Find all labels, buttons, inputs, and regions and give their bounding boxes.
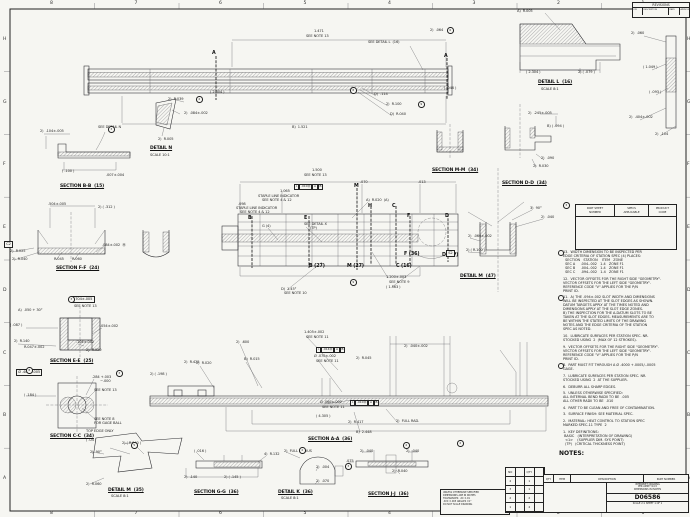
dimension-label: 2) .040	[541, 216, 554, 220]
zone-number-top: 7	[135, 1, 138, 6]
title-block-right: INTERPRET DRAWING PER ASME Y14.5 DIMENSI…	[607, 483, 688, 512]
zone-letter-right: F	[687, 162, 690, 167]
title-block-signature-area	[544, 483, 607, 512]
dimension-label: ( .046 )	[444, 87, 456, 91]
dimension-label: SEE NOTE 4 & 12	[262, 199, 292, 203]
dimension-label: SCALE 10:1	[150, 154, 170, 158]
note-flag-balloon: 2	[196, 96, 203, 103]
note-item: 7. LUBRICATE SURFACES PER STATION SPEC. …	[559, 374, 687, 382]
title-block: INTERPRET DRAWING PER ASME Y14.5 DIMENSI…	[543, 482, 689, 513]
view-section-g-g	[186, 452, 266, 477]
tolerance-block: UNLESS OTHERWISE SPECIFIED DIMENSIONS AR…	[440, 489, 510, 515]
zone-number-top: 4	[388, 1, 391, 6]
drawing-number: D06586	[607, 494, 688, 501]
dimension-label: 2) R.100	[386, 103, 401, 107]
note-flag-balloon: 3	[116, 370, 123, 377]
qty-cell	[516, 468, 526, 477]
view-detail-l	[520, 13, 620, 73]
dimension-label: ( 1.563 )	[386, 286, 400, 290]
qty-cell	[516, 494, 526, 503]
note-item: 8. PART MUST FIT THROUGH A Ø .4000 +.000…	[559, 363, 687, 371]
boxed-dimension: S2	[446, 250, 455, 257]
qty-cell	[516, 503, 526, 512]
dimension-label: ( 2.304 )	[210, 91, 224, 95]
dimension-label: 2) .004	[316, 466, 329, 470]
revisions-col-date: DATE	[669, 8, 680, 15]
dimension-label: ( 1.049 )	[643, 66, 657, 70]
zone-letter-left: G	[3, 100, 7, 105]
note-item: 13. WIDTH DIMENSION TO BE INSPECTED PER …	[559, 250, 687, 274]
dimension-label: SEE NOTE 4 & 12	[240, 211, 270, 215]
dimension-label: D) R.040	[390, 113, 406, 117]
cut-plane-letter: H	[368, 205, 372, 210]
dimension-label: 2) 90°	[90, 451, 102, 455]
dimension-label: .070	[360, 181, 368, 185]
note-item: 5. UNLESS OTHERWISE SPECIFIED: ALL INTER…	[559, 391, 687, 403]
dimension-label: 2) FULL RADIUS	[284, 450, 312, 454]
dimension-label: A) R.005	[517, 10, 533, 14]
note-flag-balloon: 3	[108, 126, 115, 133]
gdt-frame: ⌖.010ⓂAB	[294, 184, 323, 190]
dimension-label: .104±.002	[76, 341, 94, 345]
gdt-cell: .010Ⓜ	[355, 400, 368, 406]
dimension-label: SEE NOTE 10	[284, 292, 307, 296]
view-label: DETAIL M (35)	[108, 489, 144, 494]
note-flag-balloon: 6	[447, 27, 454, 34]
dimension-label: SEE NOTE 13	[304, 174, 327, 178]
dimension-label: D) .114	[374, 93, 388, 97]
cut-plane-letter: A	[444, 55, 448, 60]
dimension-label: TOP EDGE ONLY	[86, 430, 114, 434]
dimension-label: 2) .104±.005	[40, 130, 64, 134]
zone-letter-left: A	[3, 476, 6, 481]
view-label: DETAIL N	[150, 147, 172, 152]
qty-header: NO	[506, 468, 516, 477]
zone-number-top: 3	[473, 1, 476, 6]
note-item: 12. VECTOR OFFSETS FOR THE RIGHT SIDE "G…	[559, 277, 687, 293]
dimension-label: SCALE 8:1	[111, 495, 129, 499]
note-flag-balloon: 3	[563, 202, 570, 209]
note-flag-balloon: 9	[350, 279, 357, 286]
revisions-col-approved: APPROVED	[680, 8, 689, 15]
qty-cell: 1	[506, 503, 516, 512]
dimension-label: .054±.002	[100, 325, 118, 329]
note-flag-balloon: 2	[403, 442, 410, 449]
view-right-edge-bar	[640, 36, 676, 136]
revisions-columns: LTR DESCRIPTION DATE APPROVED	[633, 8, 689, 15]
dimension-label: 2) .040	[360, 450, 373, 454]
dimension-label: ( .016 )	[194, 450, 206, 454]
cut-plane-letter: D	[445, 215, 449, 220]
note-flag-balloon: 3	[345, 463, 352, 470]
view-label: SECTION M-M (34)	[432, 169, 478, 174]
dimension-label: 2) .140	[184, 476, 197, 480]
dimension-label: ( .184 )	[24, 394, 36, 398]
dimension-label: ( .087 )	[10, 324, 22, 328]
note-flag-balloon: 5	[131, 442, 138, 449]
qty-cell: 2	[525, 494, 535, 503]
scale-and-sheet: SCALE 2:1 SHEET 1 OF 1	[607, 501, 688, 506]
view-label: SECTION D-D (34)	[502, 182, 547, 187]
qty-cell: 1	[525, 486, 535, 495]
gdt-cell: B	[374, 400, 380, 406]
dimension-label: B) R.015	[244, 358, 260, 362]
cut-plane-letter: B (27)	[309, 265, 325, 270]
spec-col-specs: SPECS APPLICABLE	[615, 205, 649, 216]
spec-col-product: PRODUCT CODE	[649, 205, 676, 216]
dimension-label: 2) R.040	[12, 258, 27, 262]
qty-cell: 2	[506, 494, 516, 503]
dimension-label: 2) ( .312 )	[98, 206, 115, 210]
zone-letter-left: E	[3, 225, 6, 230]
note-flag-marker	[558, 295, 564, 301]
note-flag-balloon: 3	[68, 296, 75, 303]
note-flag-balloon: 8	[350, 87, 357, 94]
dimension-label: 4) R.132	[264, 453, 279, 457]
cut-plane-letter: B	[248, 217, 252, 222]
dimension-label: SCALE 8:1	[281, 497, 299, 501]
note-flag-balloon: 9	[418, 101, 425, 108]
gdt-cell: .014Ⓜ	[321, 347, 334, 353]
zone-letter-left: H	[3, 37, 6, 42]
view-label: DETAIL K (36)	[278, 491, 313, 496]
dimension-label: A) R.020 (A)	[366, 199, 389, 203]
dimension-label: 2) .064	[430, 29, 443, 33]
view-label: DETAIL L (16)	[538, 81, 572, 86]
view-section-b-b	[44, 132, 130, 170]
note-item: 6. DEBURR ALL SHARP EDGES.	[559, 385, 687, 389]
company-line: DIMENSIONS IN INCHES	[608, 489, 687, 492]
dimension-label: ( 2.304 )	[526, 71, 540, 75]
note-item: 1. KEY DEFINITIONS: BASIC (INTERPRETATIO…	[559, 430, 687, 446]
dimension-label: SEE NOTE 11	[322, 406, 345, 410]
notes-heading: NOTES:	[559, 450, 687, 457]
dimension-label: 2) .060	[631, 32, 644, 36]
zone-number-top: 6	[219, 1, 222, 6]
boxed-dimension: C2	[4, 241, 13, 248]
view-clip-profile	[143, 230, 169, 257]
dimension-label: .084±.002 Ⓜ	[102, 244, 126, 248]
zone-number-bottom: 5	[304, 511, 307, 516]
dimension-label: 2) .090	[541, 157, 554, 161]
dimension-label: B) 2.448	[356, 431, 372, 435]
engineering-drawing-sheet: path,rect,circle{fill:none;stroke:#26262…	[0, 0, 690, 517]
gdt-frame: ⌖.014ⓂAB	[316, 347, 345, 353]
dimension-label: 2) .040	[406, 450, 419, 454]
dimension-label: 2) R.039	[168, 98, 183, 102]
dimension-label: ( .04 )	[86, 439, 96, 443]
dimension-label: 2) ( .079 )	[578, 71, 595, 75]
zone-letter-left: D	[3, 288, 7, 293]
qty-cell	[516, 486, 526, 495]
note-flag-marker	[558, 363, 564, 369]
cut-plane-letter: A	[212, 52, 216, 57]
dimension-label: −.000	[100, 380, 111, 384]
dimension-label: 2) .600	[236, 341, 249, 345]
dimension-label: SEE NOTE 11	[316, 360, 339, 364]
quantity-table: NOQTY41312214	[505, 467, 545, 513]
dimension-label: 2) ( .145 )	[224, 476, 241, 480]
notes-list: 13. WIDTH DIMENSION TO BE INSPECTED PER …	[559, 250, 687, 446]
dimension-label: 3) 90°	[530, 207, 542, 211]
dimension-label: 2) .245±.005	[528, 112, 552, 116]
dimension-label: SEE DETAIL L (16)	[368, 41, 399, 45]
revisions-col-desc: DESCRIPTION	[643, 8, 669, 15]
qty-cell: 4	[525, 503, 535, 512]
view-section-a-a	[150, 336, 548, 432]
note-item: 4. PART TO BE CLEAN AND FREE OF CONTAMIN…	[559, 406, 687, 410]
note-item: 10. LUBRICATE SURFACES PER STATION SPEC.…	[559, 334, 687, 342]
dimension-label: .504±.005	[48, 203, 66, 207]
zone-number-bottom: 4	[388, 511, 391, 516]
dimension-label: B) ( .094 )	[547, 125, 564, 129]
dimension-label: 2) ( .198 )	[150, 373, 167, 377]
note-item: 2. MATERIAL: HEAT CONTROL TO STATION SPE…	[559, 419, 687, 427]
dimension-label: ( .100 )	[62, 170, 74, 174]
cut-plane-letter: F	[407, 215, 410, 220]
gdt-frame: ⌖.010ⓂAB	[350, 400, 379, 406]
dimension-label: 2) .084±.002	[184, 112, 208, 116]
zone-letter-right: E	[687, 225, 690, 230]
view-label: SECTION A-A (36)	[308, 438, 352, 443]
note-flag-balloon: 8	[26, 367, 33, 374]
view-detail-n	[156, 99, 184, 136]
gdt-cell: B	[318, 184, 324, 190]
zone-number-top: 5	[304, 1, 307, 6]
dimension-label: 2) R.005	[158, 138, 173, 142]
zone-letter-left: B	[3, 413, 6, 418]
view-label: SECTION F-F (24)	[56, 267, 99, 272]
view-label: SECTION B-B (15)	[60, 185, 104, 190]
dimension-label: 2) .070	[316, 480, 329, 484]
dimension-label: 2) R.425	[184, 361, 199, 365]
view-label: SECTION J-J (36)	[368, 493, 409, 498]
view-section-m-m	[437, 124, 463, 158]
dimension-label: 2) .404±.002	[629, 116, 653, 120]
boxed-dimension: .704±.005	[72, 296, 95, 303]
cut-plane-letter: F (36)	[404, 253, 419, 258]
cut-plane-letter: M (27)	[347, 265, 364, 270]
spec-col-part-sheet: PART SHEET NUMBER	[576, 205, 615, 216]
note-flag-balloon: 2	[299, 447, 306, 454]
dimension-label: FOR GAGE BALL	[94, 422, 122, 426]
revisions-col-ltr: LTR	[633, 8, 643, 15]
dimension-label: B) 1.521	[292, 126, 308, 130]
note-flag-balloon: 2	[457, 440, 464, 447]
revisions-block: REVISIONS LTR DESCRIPTION DATE APPROVED	[632, 2, 690, 18]
notes-column: 13. WIDTH DIMENSION TO BE INSPECTED PER …	[559, 250, 687, 457]
dimension-label: R.045	[54, 258, 64, 262]
view-detail-k	[286, 452, 343, 484]
qty-cell	[516, 477, 526, 486]
dimension-label: 2) .040±.002	[404, 345, 428, 349]
note-flag-marker	[558, 250, 564, 256]
dimension-label: 2) R.417	[348, 421, 363, 425]
dimension-label: .013	[418, 181, 426, 185]
zone-letter-left: C	[3, 351, 6, 356]
zone-number-bottom: 6	[219, 511, 222, 516]
dimension-label: 2) R.020	[86, 349, 101, 353]
dimension-label: 2) R.025	[10, 250, 25, 254]
dimension-label: 2) .104	[655, 133, 668, 137]
zone-number-top: 2	[557, 1, 560, 6]
dimension-label: SEE NOTE 13	[94, 389, 117, 393]
gdt-cell: .010Ⓜ	[299, 184, 312, 190]
dimension-label: 2) R.060	[86, 483, 101, 487]
dimension-label: 2) R.040	[392, 470, 407, 474]
dimension-label: 2) .060±.002	[468, 235, 492, 239]
dimension-label: SEE NOTE 13	[74, 305, 97, 309]
title-block-company: INTERPRET DRAWING PER ASME Y14.5 DIMENSI…	[607, 483, 688, 494]
view-section-f-f	[12, 206, 105, 262]
dimension-label: SEE NOTE 11	[306, 336, 329, 340]
cut-plane-letter: E	[304, 217, 307, 222]
note-item: 11. A) THE .094±.002 SLOT WIDTH AND DIME…	[559, 295, 687, 331]
dimension-label: A) .050 + 30°	[18, 309, 42, 313]
dimension-label: G (4)	[262, 225, 271, 229]
qty-cell: 3	[506, 486, 516, 495]
dimension-label: (TP)	[310, 227, 317, 231]
qty-header: QTY	[525, 468, 535, 477]
view-label: DETAIL M (47)	[460, 275, 496, 280]
tolerance-line: DO NOT SCALE DRAWING	[443, 503, 507, 506]
qty-cell: 1	[525, 477, 535, 486]
view-section-j-j	[348, 450, 428, 474]
dimension-label: 2) R.030	[533, 165, 548, 169]
cut-plane-letter: C	[392, 205, 395, 210]
dimension-label: 2) ( R.100 )	[466, 249, 485, 253]
cut-plane-letter: M	[354, 185, 359, 190]
spec-table: PART SHEET NUMBER SPECS APPLICABLE PRODU…	[575, 204, 677, 250]
spec-table-header: PART SHEET NUMBER SPECS APPLICABLE PRODU…	[576, 205, 676, 217]
dimension-label: 2) R.045	[356, 357, 371, 361]
dimension-label: SCALE 8:1	[541, 88, 559, 92]
view-label: SECTION G-G (36)	[194, 491, 239, 496]
dimension-label: R.047±.002	[24, 346, 44, 350]
dimension-label: .007±.004	[106, 174, 124, 178]
dimension-label: SEE NOTE 13	[306, 35, 329, 39]
dimension-label: ( 4.305 )	[316, 415, 330, 419]
dimension-label: R.060	[72, 258, 82, 262]
zone-number-top: 8	[50, 1, 53, 6]
zone-letter-left: F	[3, 162, 6, 167]
cut-plane-letter: C (16)	[396, 265, 412, 270]
dimension-label: 2) R.140	[14, 340, 29, 344]
dimension-label: ( .093 )	[649, 91, 661, 95]
view-label: SECTION E-E (25)	[50, 360, 93, 365]
zone-number-bottom: 8	[50, 511, 53, 516]
gdt-cell: B	[340, 347, 346, 353]
note-item: 3. SURFACE FINISH: SEE MATERIAL SPEC.	[559, 412, 687, 416]
zone-number-bottom: 7	[135, 511, 138, 516]
qty-cell: 4	[506, 477, 516, 486]
note-item: 9. VECTOR OFFSETS FOR THE RIGHT SIDE "GE…	[559, 345, 687, 361]
dimension-label: 2) FULL RAD.	[396, 420, 419, 424]
